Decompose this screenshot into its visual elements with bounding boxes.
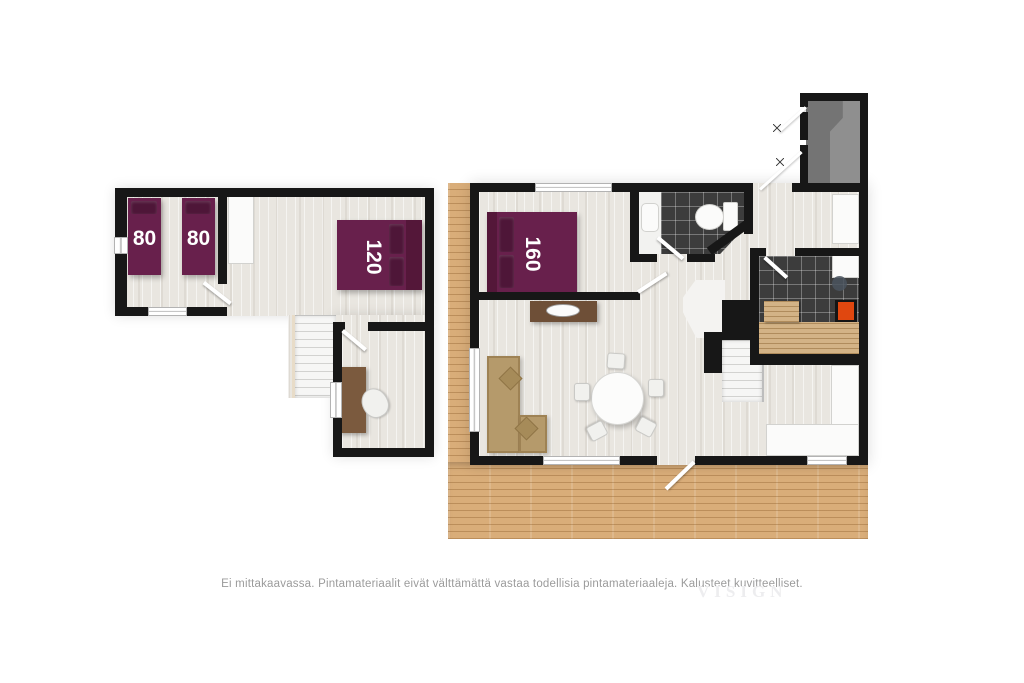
window — [469, 348, 480, 432]
bed-120: 120 — [337, 220, 422, 290]
toilet-bowl — [695, 204, 724, 230]
wall — [612, 183, 753, 192]
wall — [792, 183, 868, 192]
sink — [641, 203, 659, 232]
dining-chair — [648, 379, 664, 397]
disclaimer-text: Ei mittakaavassa. Pintamateriaalit eivät… — [0, 578, 1024, 590]
window — [807, 456, 847, 465]
pillow — [389, 257, 404, 286]
wall — [470, 183, 535, 192]
wall — [333, 448, 434, 457]
sauna-step-bench — [764, 301, 799, 322]
door-swing-mark-icon — [773, 124, 781, 132]
pillow — [131, 201, 157, 214]
wall — [847, 456, 868, 465]
bed-size-label: 160 — [520, 237, 544, 272]
wall — [759, 248, 766, 256]
wall — [859, 183, 868, 465]
wall — [639, 254, 657, 262]
window — [148, 307, 187, 316]
dining-chair — [574, 383, 590, 401]
window — [114, 237, 128, 254]
storage-shelf-area — [830, 99, 862, 185]
wall — [704, 332, 722, 373]
bed-size-label: 80 — [187, 227, 210, 251]
fridge-cabinet — [832, 194, 859, 244]
pillow — [389, 224, 404, 254]
wall — [630, 192, 639, 262]
wall — [860, 93, 868, 192]
window — [330, 382, 342, 418]
wall — [687, 254, 715, 262]
headboard — [406, 220, 422, 290]
wall — [368, 322, 425, 331]
wall — [115, 188, 434, 197]
bed-160: 160 — [487, 212, 577, 292]
wall — [800, 93, 868, 101]
deck-side — [448, 183, 471, 463]
bed-80-right: 80 — [182, 198, 215, 275]
wall — [750, 248, 759, 363]
tv — [546, 304, 580, 317]
door-swing-mark-icon — [776, 158, 784, 166]
sauna-heater — [838, 302, 854, 320]
kitchen-counter-horizontal — [766, 424, 859, 456]
wall — [218, 188, 227, 284]
bed-80-left: 80 — [128, 198, 161, 275]
sauna-bench — [759, 322, 859, 354]
bed-size-label: 80 — [133, 227, 156, 251]
floor-drain — [832, 276, 847, 291]
pillow — [185, 201, 211, 214]
bed-size-label: 120 — [361, 240, 385, 275]
wall — [795, 248, 859, 256]
storage-room-floor — [806, 99, 862, 185]
wall — [425, 188, 434, 457]
wall — [620, 456, 657, 465]
wall — [750, 354, 868, 365]
wall — [800, 112, 808, 140]
headboard — [487, 212, 497, 292]
watermark: VISIGN — [697, 582, 817, 602]
dining-chair — [606, 352, 625, 369]
pillow — [499, 217, 514, 252]
floorplan-canvas: 80 80 120 — [0, 0, 1024, 683]
wardrobe — [228, 195, 254, 264]
wall — [470, 456, 543, 465]
pillow — [499, 255, 514, 288]
window — [535, 183, 612, 192]
deck-terrace — [448, 462, 868, 539]
wall — [695, 456, 807, 465]
window — [543, 456, 620, 465]
wall — [479, 292, 640, 300]
wall — [800, 93, 808, 107]
dining-table — [591, 372, 644, 425]
